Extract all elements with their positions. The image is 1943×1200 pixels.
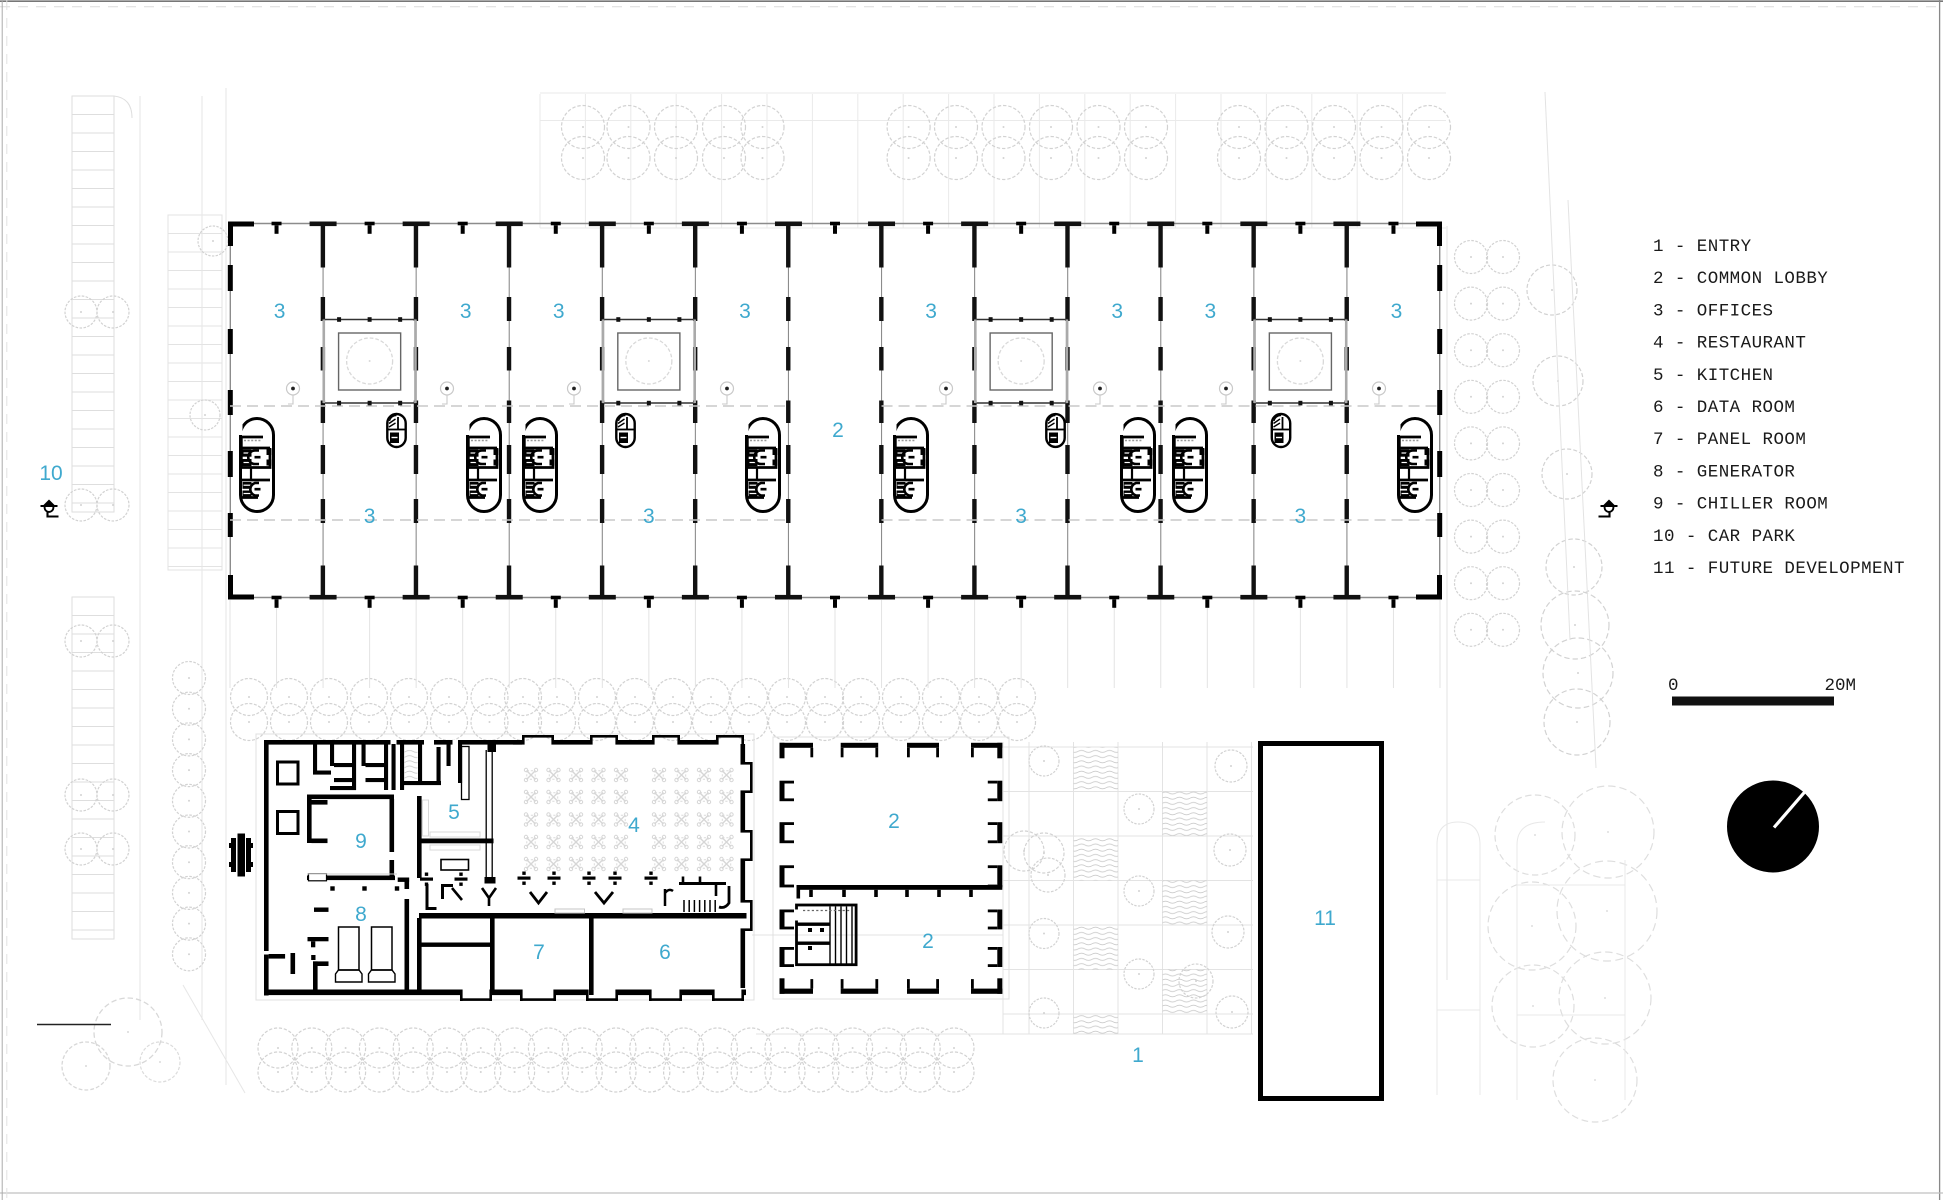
svg-text:3: 3: [739, 300, 751, 323]
svg-text:0: 0: [1668, 676, 1679, 696]
svg-text:10: 10: [39, 462, 62, 485]
svg-text:7 - PANEL ROOM: 7 - PANEL ROOM: [1653, 430, 1806, 450]
svg-text:9: 9: [355, 830, 367, 853]
svg-text:8: 8: [355, 903, 367, 926]
svg-text:5 - KITCHEN: 5 - KITCHEN: [1653, 366, 1773, 386]
svg-text:3: 3: [1015, 505, 1027, 528]
svg-text:20M: 20M: [1824, 676, 1856, 696]
svg-text:3: 3: [364, 505, 376, 528]
svg-text:3: 3: [1391, 300, 1403, 323]
svg-text:10 - CAR PARK: 10 - CAR PARK: [1653, 527, 1795, 547]
svg-text:3: 3: [274, 300, 286, 323]
svg-text:4: 4: [628, 814, 640, 837]
svg-text:2: 2: [832, 419, 844, 442]
svg-text:8 - GENERATOR: 8 - GENERATOR: [1653, 462, 1795, 482]
svg-text:3: 3: [553, 300, 565, 323]
svg-text:3: 3: [925, 300, 937, 323]
svg-text:3: 3: [643, 505, 655, 528]
svg-text:9 - CHILLER ROOM: 9 - CHILLER ROOM: [1653, 495, 1828, 515]
svg-text:2: 2: [922, 930, 934, 953]
svg-text:3: 3: [460, 300, 472, 323]
svg-text:6: 6: [659, 941, 671, 964]
svg-text:11: 11: [1314, 907, 1336, 930]
svg-text:2 - COMMON LOBBY: 2 - COMMON LOBBY: [1653, 269, 1828, 289]
svg-text:3: 3: [1111, 300, 1123, 323]
svg-text:6 - DATA ROOM: 6 - DATA ROOM: [1653, 398, 1795, 418]
svg-text:11 - FUTURE DEVELOPMENT: 11 - FUTURE DEVELOPMENT: [1653, 559, 1905, 579]
svg-text:2: 2: [888, 810, 900, 833]
svg-text:4 - RESTAURANT: 4 - RESTAURANT: [1653, 334, 1806, 354]
svg-text:7: 7: [533, 941, 545, 964]
svg-text:1 - ENTRY: 1 - ENTRY: [1653, 237, 1752, 257]
svg-text:3 - OFFICES: 3 - OFFICES: [1653, 301, 1773, 321]
svg-text:3: 3: [1204, 300, 1216, 323]
svg-text:1: 1: [1132, 1044, 1144, 1067]
svg-text:3: 3: [1295, 505, 1307, 528]
svg-text:5: 5: [448, 801, 460, 824]
